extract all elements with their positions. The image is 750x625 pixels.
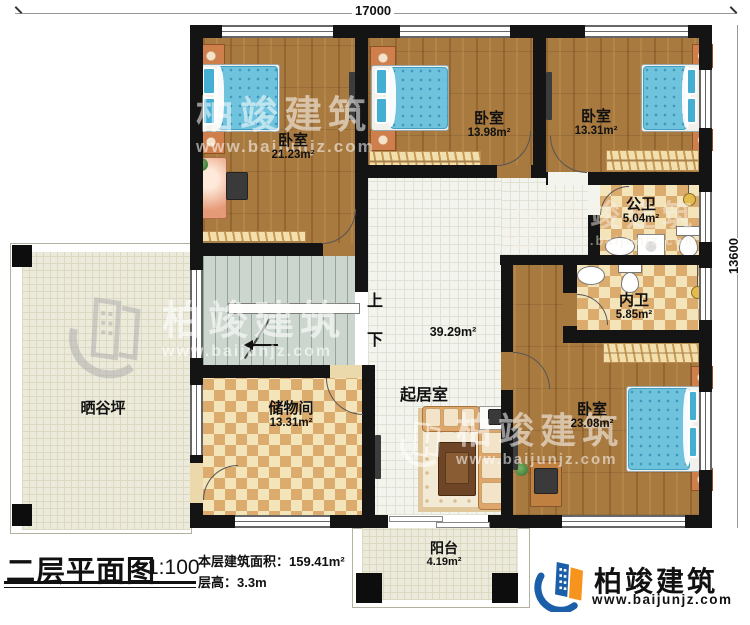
window (699, 70, 712, 128)
room-area: 5.85m² (616, 309, 652, 322)
room-label-drying-terrace: 晒谷坪 (80, 400, 125, 417)
stair-railing (228, 303, 360, 314)
room-label-bedroom-bottom-right: 卧室 23.08m² (571, 401, 614, 431)
bed-sheet-fold (214, 66, 224, 128)
room-area: 21.23m² (272, 149, 315, 162)
wall (533, 25, 546, 178)
wall-tv (375, 435, 381, 479)
wall (355, 25, 368, 292)
building-area-line: 本层建筑面积：159.41m² (198, 551, 345, 570)
wardrobe (606, 150, 699, 171)
door-opening (588, 185, 600, 215)
room-label-public-bathroom: 公卫 5.04m² (623, 196, 659, 226)
room-name: 卧室 (272, 132, 315, 149)
brand-website: www.baijunjz.com (592, 592, 733, 607)
wall (563, 330, 712, 343)
stair-arrowhead-icon (244, 340, 253, 350)
room-label-ensuite-bathroom: 内卫 5.85m² (616, 292, 652, 322)
wall (362, 378, 375, 515)
window (699, 268, 712, 320)
stairs-down-label: 下 (367, 326, 383, 350)
room-name: 晒谷坪 (80, 400, 125, 417)
wall (500, 255, 712, 265)
sofa-cushion (461, 408, 475, 427)
room-area: 13.98m² (468, 127, 511, 140)
door-opening (501, 352, 513, 390)
title-underline-thin (4, 587, 196, 588)
bed-mattress (390, 67, 448, 129)
toilet (621, 272, 639, 293)
light-fixture (683, 193, 696, 206)
room-label-storage-room: 储物间 13.31m² (268, 400, 313, 430)
window (699, 392, 712, 470)
room-name: 阳台 (427, 540, 462, 556)
door-opening (330, 365, 362, 378)
balcony-column (356, 573, 382, 603)
window (190, 385, 203, 455)
window (222, 25, 333, 38)
bed-pillow (688, 390, 698, 422)
terrace-column (12, 245, 32, 267)
sliding-door (436, 522, 490, 528)
sink (605, 237, 635, 256)
door-opening (190, 463, 203, 503)
floor-plan-canvas: 17000 13600 (0, 0, 750, 625)
window (585, 25, 688, 38)
light-cord (697, 265, 698, 287)
room-area: 39.29m² (430, 325, 477, 339)
door-opening (497, 165, 531, 178)
computer-monitor (534, 468, 558, 494)
door-opening (323, 243, 355, 256)
sofa-cushion (443, 408, 459, 427)
bed-pillow (688, 426, 698, 458)
room-area: 23.08m² (571, 418, 614, 431)
room-label-bedroom-top-middle: 卧室 13.98m² (468, 110, 511, 140)
title-underline (4, 581, 196, 584)
wall-tv (513, 428, 518, 470)
stairs-up-label: 上 (367, 287, 383, 311)
corridor-floor (501, 178, 600, 255)
room-label-living-room: 起居室 (400, 387, 448, 405)
sofa-cushion (425, 408, 441, 427)
wardrobe (603, 343, 699, 363)
window (400, 25, 510, 38)
bed-mattress (628, 388, 690, 470)
room-name: 公卫 (623, 196, 659, 213)
sink (577, 266, 605, 285)
room-area: 4.19m² (427, 556, 462, 569)
room-name: 卧室 (571, 401, 614, 418)
computer-monitor (226, 172, 248, 200)
shower-unit (637, 234, 665, 257)
room-area: 13.31m² (268, 417, 313, 430)
sofa-cushion (481, 482, 503, 504)
nightstand (370, 129, 396, 151)
room-label-bedroom-top-right: 卧室 13.31m² (575, 108, 618, 138)
toilet (679, 235, 698, 257)
room-label-bedroom-top-left: 卧室 21.23m² (272, 132, 315, 162)
brand-logo-icon (534, 554, 590, 617)
bed-sheet-fold (386, 67, 396, 127)
door-opening (548, 172, 588, 185)
floor-height-line: 层高：3.3m (198, 572, 267, 591)
living-room-area-label: 39.29m² (430, 325, 477, 339)
window (699, 192, 712, 242)
balcony-column (492, 573, 518, 603)
right-dimension-label: 13600 (723, 238, 744, 274)
room-name: 卧室 (468, 110, 511, 127)
watermark-logo-icon (126, 95, 188, 161)
room-label-balcony: 阳台 4.19m² (427, 540, 462, 569)
coffee-table-decor (445, 452, 469, 484)
door-opening (563, 293, 577, 326)
bed-pillow (686, 97, 697, 124)
bed-mattress (218, 66, 278, 130)
bed-mattress (643, 66, 687, 130)
wall-tv (546, 72, 552, 120)
room-name: 储物间 (268, 400, 313, 417)
sofa-cushion (481, 457, 503, 479)
room-area: 13.31m² (575, 125, 618, 138)
room-area: 5.04m² (623, 213, 659, 226)
stair-direction-arrow (252, 344, 278, 346)
room-name: 内卫 (616, 292, 652, 309)
terrace-column (12, 504, 32, 526)
sofa-cushion (481, 432, 503, 454)
room-name: 起居室 (400, 387, 448, 405)
right-dimension-line (737, 25, 738, 528)
plan-scale: 1:100 (147, 556, 200, 580)
bed-pillow (686, 68, 697, 95)
drying-terrace-floor (22, 252, 190, 530)
room-name: 卧室 (575, 108, 618, 125)
window (190, 270, 203, 358)
sliding-door (389, 516, 443, 522)
window (562, 515, 685, 528)
window (235, 515, 330, 528)
top-dimension-label: 17000 (352, 3, 394, 18)
